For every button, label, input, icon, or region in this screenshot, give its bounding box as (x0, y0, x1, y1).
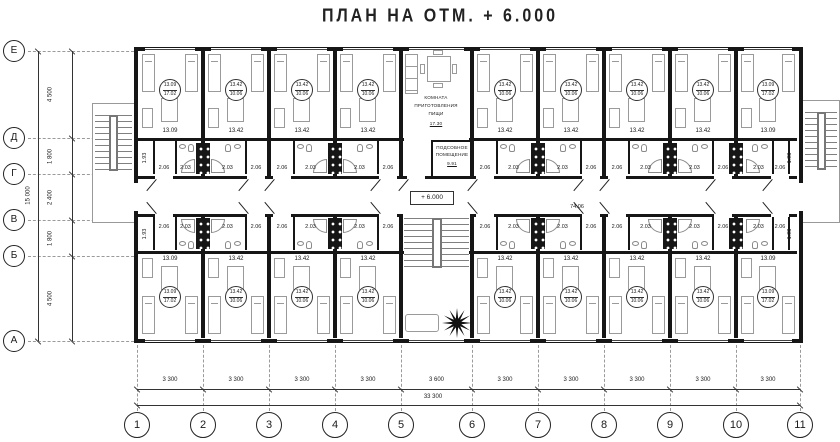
entry-area: 2.06 (377, 165, 399, 173)
sink (366, 241, 373, 246)
door-opening (476, 176, 494, 179)
window (277, 48, 327, 51)
axis-letter-bubble: Д (3, 127, 25, 149)
stair-stringer (817, 112, 826, 170)
entry-area: 2.06 (712, 165, 734, 173)
room-label-bottom: 10.06 (291, 297, 313, 306)
party-wall (267, 217, 271, 338)
chair (452, 64, 457, 74)
bed (718, 54, 731, 92)
dim-label: 1 800 (48, 136, 57, 176)
entry-area: 2.06 (271, 165, 293, 173)
window (211, 48, 261, 51)
partition (628, 141, 630, 174)
room-label-top: 13.42 (357, 288, 379, 297)
toilet (357, 144, 363, 152)
window (409, 339, 464, 342)
sink (632, 144, 639, 149)
cabinet (142, 108, 153, 128)
axis-extension-line (203, 345, 204, 411)
sink (179, 144, 186, 149)
cabinet (477, 108, 488, 128)
dim-label: 4 500 (48, 75, 57, 115)
room-label-top: 13.42 (357, 81, 379, 90)
bed (477, 54, 490, 92)
window (546, 48, 596, 51)
window (480, 339, 530, 342)
door-opening (134, 183, 138, 211)
bed (586, 296, 599, 334)
room-label-bottom: 17.02 (159, 297, 181, 306)
room-label-top: 13.42 (291, 81, 313, 90)
cabinet (208, 108, 219, 128)
partition (293, 141, 295, 174)
window (343, 48, 393, 51)
bath-area: 2.03 (748, 224, 770, 232)
room-label-bottom: 10.06 (626, 297, 648, 306)
room-label-bottom: 17.02 (757, 90, 779, 99)
axis-extension-line (335, 345, 336, 411)
room-dim-text: 13.42 (216, 256, 256, 264)
door-opening (771, 214, 789, 217)
door-opening (714, 176, 732, 179)
window (678, 339, 728, 342)
axis-extension-line (538, 345, 539, 411)
entry-area: 2.06 (769, 165, 791, 173)
sink (234, 241, 241, 246)
entry-area: 2.06 (271, 224, 293, 232)
bed (543, 54, 556, 92)
window (343, 339, 393, 342)
dim-label: 3 300 (683, 377, 723, 386)
room-label-bottom: 17.02 (159, 90, 181, 99)
bath-area: 2.03 (503, 165, 525, 173)
vent-shaft (729, 218, 743, 249)
sink (179, 241, 186, 246)
toilet (509, 144, 515, 152)
dim-line (137, 405, 800, 406)
room-dim-text: 13.42 (551, 128, 591, 136)
bed (652, 296, 665, 334)
toilet (641, 241, 647, 249)
window (612, 48, 662, 51)
dim-label: 3 300 (150, 377, 190, 386)
axis-extension-line (137, 345, 138, 411)
room-label-bottom: 10.06 (692, 297, 714, 306)
vent-shaft (196, 218, 210, 249)
entry-area: 2.06 (153, 165, 175, 173)
vent-shaft (531, 218, 545, 249)
bath-area: 2.03 (175, 224, 197, 232)
entry-area: 2.06 (712, 224, 734, 232)
bed (741, 54, 754, 92)
door-opening (273, 214, 291, 217)
door-opening (714, 214, 732, 217)
entry-area: 2.06 (580, 165, 602, 173)
vent-shaft (196, 143, 210, 174)
room-dim-text: 13.42 (216, 128, 256, 136)
window (145, 48, 195, 51)
party-wall (399, 217, 403, 338)
bath-area: 2.03 (635, 224, 657, 232)
room-label-bottom: 10.06 (357, 297, 379, 306)
edge-room-area: 1.93 (142, 148, 150, 168)
partition (712, 217, 714, 250)
sink (632, 241, 639, 246)
door-opening (155, 214, 173, 217)
party-wall (602, 217, 606, 338)
party-wall (399, 51, 403, 176)
door-opening (608, 214, 626, 217)
bath-area: 2.03 (300, 165, 322, 173)
drawing-title: ПЛАН НА ОТМ. + 6.000 (270, 6, 610, 27)
room-dim-text: 13.09 (748, 256, 788, 264)
sofa (405, 314, 439, 332)
partition (293, 217, 295, 250)
dim-line (38, 51, 39, 341)
bath-area: 2.03 (635, 165, 657, 173)
vent-shaft (328, 143, 342, 174)
stair-stringer (432, 218, 442, 268)
axis-extension-line (28, 341, 134, 342)
partition (496, 141, 498, 174)
cabinet (340, 108, 351, 128)
axis-extension-line (28, 51, 134, 52)
dim-line (72, 51, 73, 341)
chair (433, 50, 443, 55)
bed (208, 54, 221, 92)
room-dim-text: 13.09 (150, 128, 190, 136)
window (145, 339, 195, 342)
bed (586, 54, 599, 92)
room-label-top: 13.42 (291, 288, 313, 297)
toilet (306, 241, 312, 249)
table (227, 98, 244, 122)
axis-number-bubble: 3 (256, 412, 282, 438)
dim-label: 3 300 (485, 377, 525, 386)
partition (431, 140, 471, 142)
room-label-top: 13.42 (692, 81, 714, 90)
bed (142, 54, 155, 92)
vent-shaft (531, 143, 545, 174)
room-label-top: 13.09 (757, 81, 779, 90)
bath-area: 2.03 (552, 224, 574, 232)
toilet (188, 144, 194, 152)
bed (741, 296, 754, 334)
room-label-bottom: 10.06 (291, 90, 313, 99)
cabinet (675, 108, 686, 128)
cabinet (609, 108, 620, 128)
room-label-bottom: 10.06 (692, 90, 714, 99)
partition (580, 217, 582, 250)
bed (609, 296, 622, 334)
kitchen-name: ПРИГОТОВЛЕНИЯ (408, 103, 464, 111)
vent-shaft (663, 143, 677, 174)
bed (274, 296, 287, 334)
cabinet (543, 108, 554, 128)
bath-area: 2.03 (552, 165, 574, 173)
room-dim-text: 13.09 (150, 256, 190, 264)
door-opening (799, 183, 803, 211)
partition (377, 217, 379, 250)
axis-extension-line (736, 345, 737, 411)
bed (274, 54, 287, 92)
sink (366, 144, 373, 149)
axis-letter-bubble: В (3, 209, 25, 231)
stair-opening (403, 214, 470, 217)
axis-extension-line (604, 345, 605, 411)
table (359, 98, 376, 122)
axis-number-bubble: 8 (591, 412, 617, 438)
party-wall (267, 51, 271, 176)
vent-shaft (663, 218, 677, 249)
bed (208, 296, 221, 334)
bath-area: 2.03 (217, 224, 239, 232)
cabinet (741, 108, 752, 128)
bed (782, 54, 795, 92)
edge-room-area: 1.93 (142, 224, 150, 244)
room-label-bottom: 10.06 (225, 90, 247, 99)
room-dim-text: 13.42 (683, 256, 723, 264)
corridor-wall (138, 176, 797, 179)
floor-plan-canvas: ПЛАН НА ОТМ. + 6.000 4 5001 8002 4001 80… (0, 0, 840, 442)
sink (761, 241, 768, 246)
bath-area: 2.03 (175, 165, 197, 173)
axis-letter-bubble: Г (3, 163, 25, 185)
axis-number-bubble: 4 (322, 412, 348, 438)
toilet (357, 241, 363, 249)
door-opening (155, 176, 173, 179)
dim-total-label: 33 300 (413, 394, 453, 403)
bath-area: 2.03 (684, 165, 706, 173)
room-label-top: 13.09 (757, 288, 779, 297)
utility-name: ПОМЕЩЕНИЕ (434, 152, 470, 159)
bed (520, 54, 533, 92)
bed (142, 296, 155, 334)
utility-name: ПОДСОБНОЕ (434, 145, 470, 152)
bed (477, 296, 490, 334)
room-label-top: 13.42 (626, 288, 648, 297)
bed (520, 296, 533, 334)
table (628, 98, 645, 122)
bed (675, 54, 688, 92)
room-dim-text: 13.09 (748, 128, 788, 136)
bed (543, 296, 556, 334)
dim-total-label: 15 000 (26, 176, 35, 216)
room-label-bottom: 10.06 (560, 297, 582, 306)
chair (420, 64, 425, 74)
window (277, 339, 327, 342)
kitchen-name: ПИЩИ (408, 111, 464, 119)
toilet (509, 241, 515, 249)
dim-label: 3 300 (282, 377, 322, 386)
toilet (641, 144, 647, 152)
corridor-area: 74.06 (562, 204, 592, 212)
room-dim-text: 13.42 (348, 128, 388, 136)
door-opening (608, 176, 626, 179)
room-dim-text: 13.42 (282, 128, 322, 136)
partition (245, 217, 247, 250)
entry-area: 2.06 (245, 165, 267, 173)
axis-number-bubble: 7 (525, 412, 551, 438)
window (480, 48, 530, 51)
window (612, 339, 662, 342)
toilet (225, 241, 231, 249)
bed (383, 54, 396, 92)
window (546, 339, 596, 342)
bed (340, 296, 353, 334)
room-label-top: 13.09 (159, 81, 181, 90)
partition (431, 140, 433, 176)
door-opening (771, 176, 789, 179)
axis-number-bubble: 1 (124, 412, 150, 438)
kitchen-table (427, 56, 451, 82)
sink (569, 144, 576, 149)
dim-line (137, 389, 800, 390)
axis-number-bubble: 2 (190, 412, 216, 438)
bed (340, 54, 353, 92)
window (744, 48, 792, 51)
room-dim-text: 13.42 (683, 128, 723, 136)
table (694, 98, 711, 122)
bed (782, 296, 795, 334)
toilet (306, 144, 312, 152)
partition (496, 217, 498, 250)
bath-area: 2.03 (748, 165, 770, 173)
room-dim-text: 13.42 (348, 256, 388, 264)
dim-label: 3 300 (348, 377, 388, 386)
toilet (692, 241, 698, 249)
door-opening (247, 176, 265, 179)
axis-extension-line (472, 345, 473, 411)
door-opening (247, 214, 265, 217)
axis-extension-line (800, 345, 801, 411)
door-opening (407, 176, 425, 179)
utility-area: 9.91 (434, 161, 470, 168)
bed (317, 296, 330, 334)
door-opening (476, 214, 494, 217)
chair (433, 83, 443, 88)
room-label-top: 13.42 (225, 81, 247, 90)
plant-icon (442, 308, 472, 338)
bath-area: 2.03 (349, 224, 371, 232)
bed (383, 296, 396, 334)
axis-extension-line (269, 345, 270, 411)
dim-label: 3 300 (748, 377, 788, 386)
toilet (560, 241, 566, 249)
toilet (752, 144, 758, 152)
bed (251, 54, 264, 92)
toilet (188, 241, 194, 249)
door-opening (582, 176, 600, 179)
entry-area: 2.06 (474, 165, 496, 173)
party-wall (470, 51, 474, 176)
table (161, 98, 178, 122)
dim-label: 1 800 (48, 218, 57, 258)
room-label-bottom: 10.06 (225, 297, 247, 306)
sink (297, 241, 304, 246)
entry-area: 2.06 (474, 224, 496, 232)
room-label-bottom: 10.06 (626, 90, 648, 99)
dim-label: 2 400 (48, 177, 57, 217)
partition (175, 217, 177, 250)
bed (251, 296, 264, 334)
bed (675, 296, 688, 334)
entry-area: 2.06 (769, 224, 791, 232)
elevation-mark: + 6.000 (410, 191, 454, 205)
kitchen-counter (405, 54, 418, 94)
axis-number-bubble: 6 (459, 412, 485, 438)
dim-label: 3 300 (551, 377, 591, 386)
axis-number-bubble: 5 (388, 412, 414, 438)
room-label-top: 13.42 (494, 81, 516, 90)
room-label-top: 13.42 (560, 288, 582, 297)
room-label-bottom: 17.02 (757, 297, 779, 306)
partition (628, 217, 630, 250)
sink (500, 144, 507, 149)
axis-number-bubble: 10 (723, 412, 749, 438)
partition (153, 217, 155, 250)
room-dim-text: 13.42 (617, 128, 657, 136)
table (759, 98, 776, 122)
axis-letter-bubble: Е (3, 40, 25, 62)
bed (718, 296, 731, 334)
window (211, 339, 261, 342)
dim-label: 4 500 (48, 279, 57, 319)
room-dim-text: 13.42 (551, 256, 591, 264)
room-label-top: 13.42 (692, 288, 714, 297)
kitchen-area: 17.30 (408, 121, 464, 129)
room-label-top: 13.09 (159, 288, 181, 297)
toilet (752, 241, 758, 249)
door-opening (379, 214, 397, 217)
kitchen-name: КОМНАТА (408, 95, 464, 103)
room-label-bottom: 10.06 (494, 297, 516, 306)
room-label-bottom: 10.06 (357, 90, 379, 99)
sink (701, 241, 708, 246)
window (744, 339, 792, 342)
party-wall (602, 51, 606, 176)
axis-letter-bubble: А (3, 330, 25, 352)
entry-area: 2.06 (580, 224, 602, 232)
room-label-bottom: 10.06 (560, 90, 582, 99)
bath-area: 2.03 (684, 224, 706, 232)
room-dim-text: 13.42 (485, 128, 525, 136)
axis-extension-line (401, 345, 402, 411)
room-dim-text: 13.42 (617, 256, 657, 264)
sink (500, 241, 507, 246)
axis-extension-line (28, 256, 134, 257)
axis-letter-bubble: Б (3, 245, 25, 267)
bath-area: 2.03 (349, 165, 371, 173)
bath-area: 2.03 (217, 165, 239, 173)
axis-extension-line (670, 345, 671, 411)
bed (609, 54, 622, 92)
axis-number-bubble: 9 (657, 412, 683, 438)
room-dim-text: 13.42 (282, 256, 322, 264)
entry-area: 2.06 (245, 224, 267, 232)
axis-number-bubble: 11 (787, 412, 813, 438)
toilet (692, 144, 698, 152)
bed (185, 296, 198, 334)
vent-shaft (328, 218, 342, 249)
entry-area: 2.06 (606, 165, 628, 173)
room-label-top: 13.42 (225, 288, 247, 297)
dim-label: 3 300 (617, 377, 657, 386)
room-label-bottom: 10.06 (494, 90, 516, 99)
bed (317, 54, 330, 92)
bed (185, 54, 198, 92)
